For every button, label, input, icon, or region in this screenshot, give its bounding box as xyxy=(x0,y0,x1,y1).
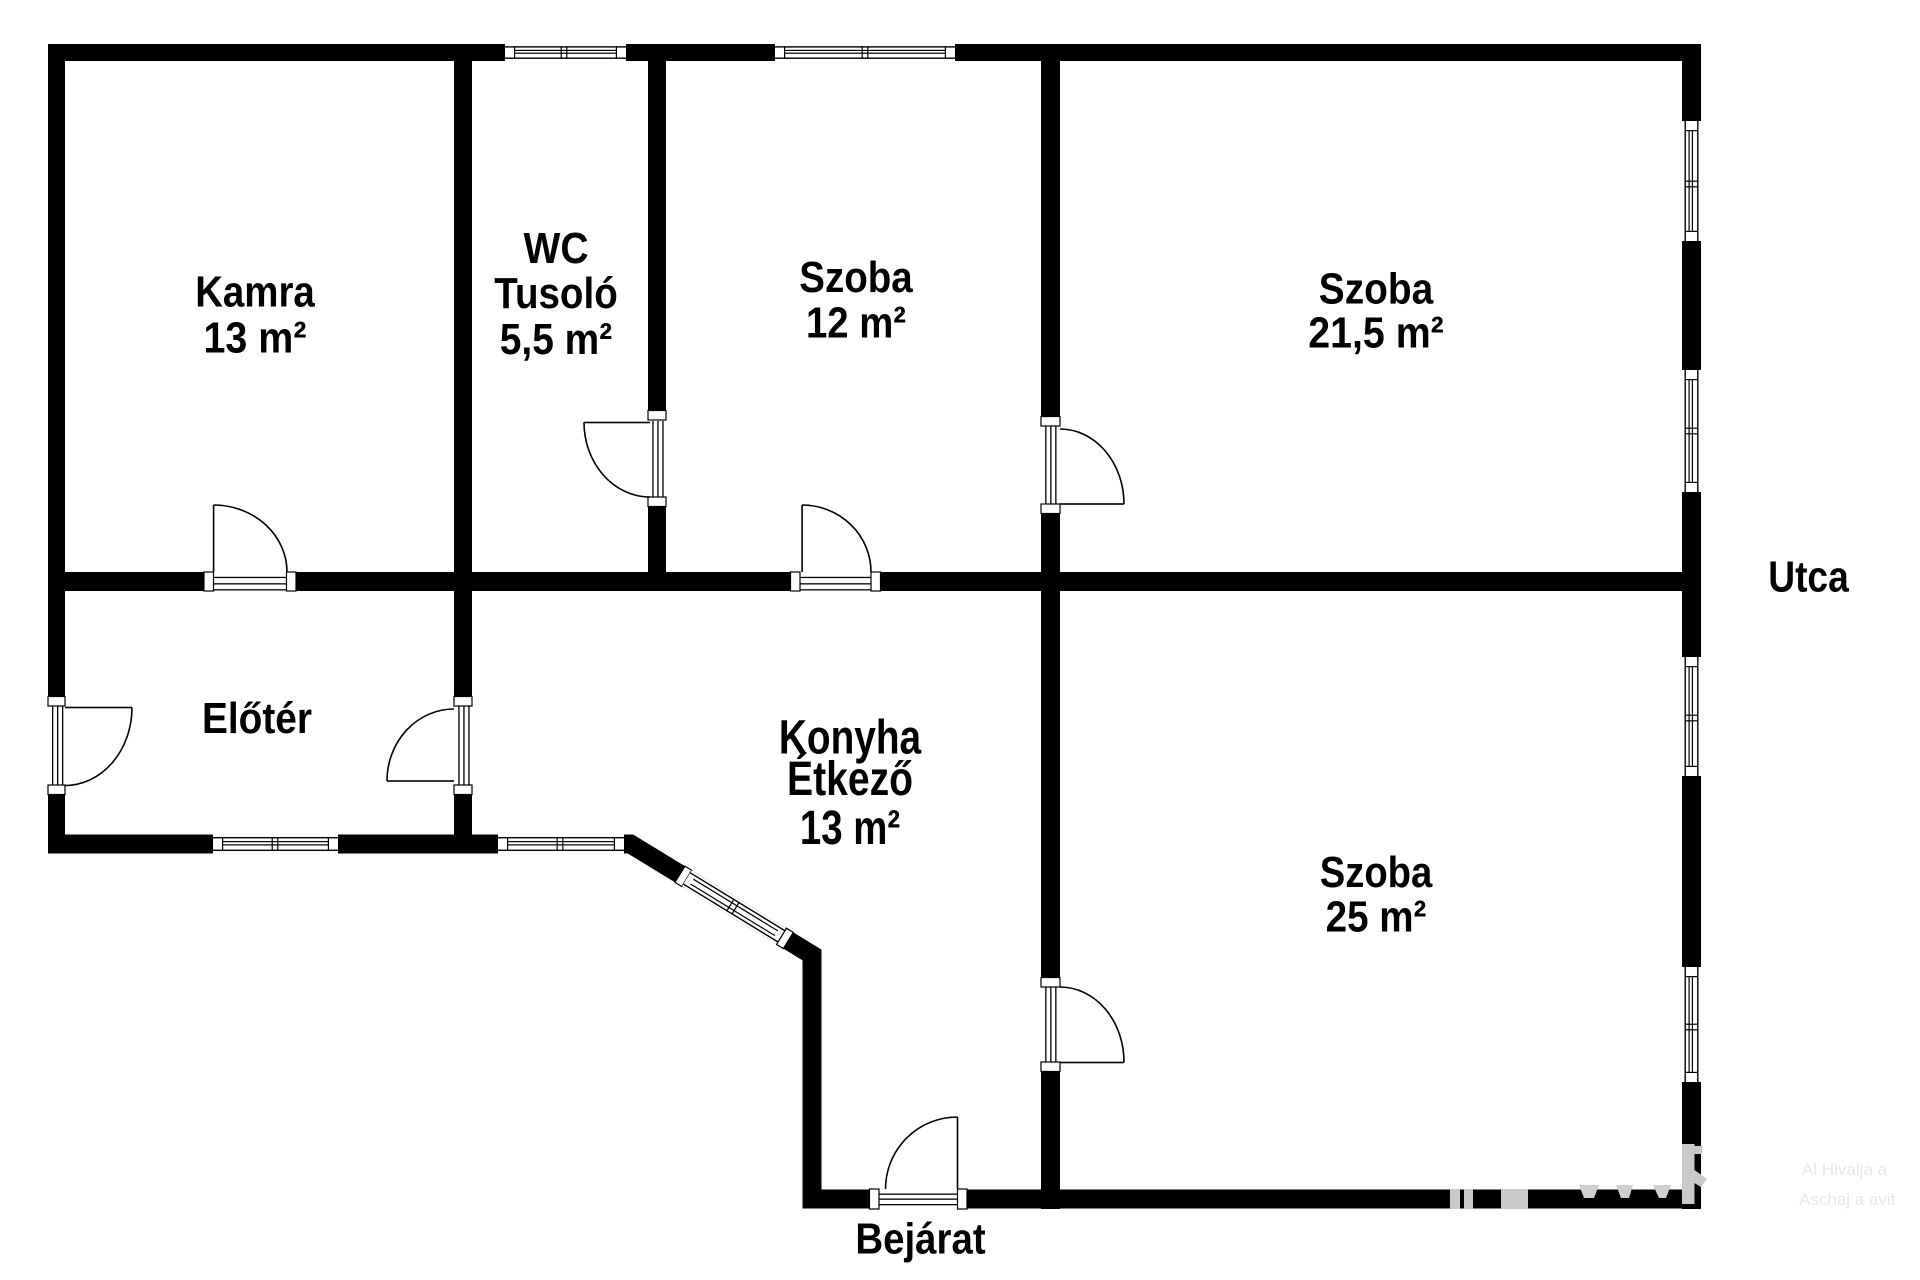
svg-text:5,5 m²: 5,5 m² xyxy=(500,315,612,364)
svg-text:Al Hivalja a: Al Hivalja a xyxy=(1802,1160,1888,1179)
svg-text:Szoba: Szoba xyxy=(1319,265,1434,314)
svg-text:13 m²: 13 m² xyxy=(204,314,307,363)
svg-text:Szoba: Szoba xyxy=(799,253,913,302)
svg-text:25 m²: 25 m² xyxy=(1326,892,1427,941)
svg-text:Utca: Utca xyxy=(1768,553,1849,602)
svg-text:Aschaj a avit: Aschaj a avit xyxy=(1799,1190,1896,1209)
svg-text:WC: WC xyxy=(524,224,589,273)
svg-text:Étkező: Étkező xyxy=(787,752,913,806)
svg-text:12 m²: 12 m² xyxy=(806,299,906,348)
svg-text:Tusoló: Tusoló xyxy=(494,269,618,318)
svg-text:Kamra: Kamra xyxy=(195,267,315,316)
svg-text:Előtér: Előtér xyxy=(202,694,312,743)
svg-text:21,5 m²: 21,5 m² xyxy=(1308,309,1444,358)
svg-text:Szoba: Szoba xyxy=(1320,848,1433,897)
svg-text:13 m²: 13 m² xyxy=(800,802,900,855)
svg-text:Bejárat: Bejárat xyxy=(855,1215,986,1264)
